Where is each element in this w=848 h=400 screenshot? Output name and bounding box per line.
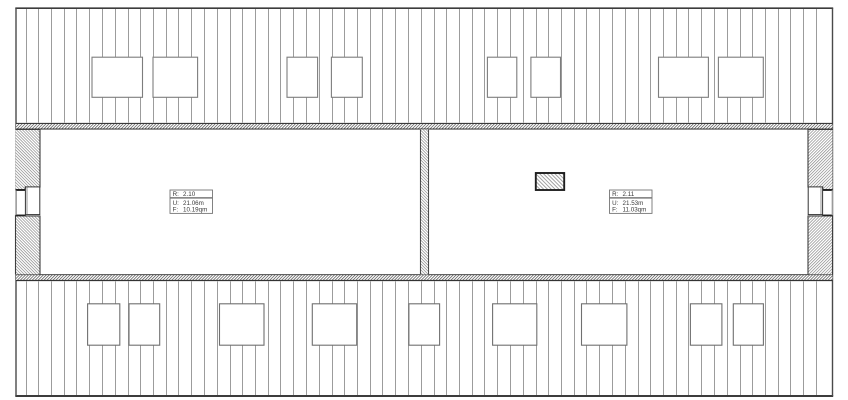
svg-text:2.10: 2.10 — [183, 191, 196, 198]
svg-text:R:: R: — [173, 191, 180, 198]
svg-text:F:: F: — [173, 207, 179, 214]
svg-text:10.19qm: 10.19qm — [183, 207, 207, 214]
svg-text:11.03qm: 11.03qm — [623, 207, 647, 214]
svg-text:F:: F: — [612, 207, 618, 214]
svg-text:R:: R: — [612, 191, 619, 198]
svg-text:2.11: 2.11 — [623, 191, 635, 198]
